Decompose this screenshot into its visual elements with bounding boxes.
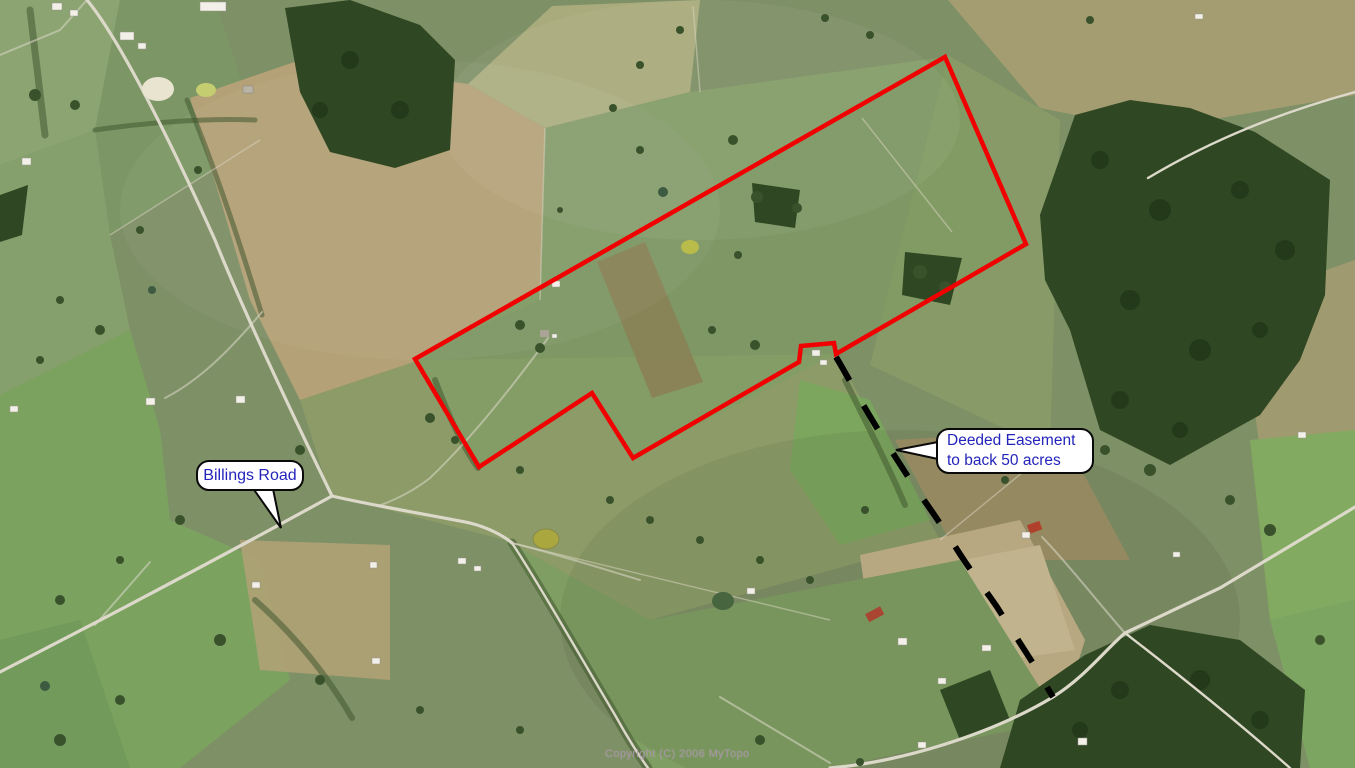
copyright-watermark: Copyright (C) 2006 MyTopo: [605, 748, 765, 760]
easement-label-line2: to back 50 acres: [947, 451, 1092, 471]
easement-label-line1: Deeded Easement: [947, 431, 1092, 451]
easement-callout: Deeded Easement to back 50 acres: [936, 428, 1094, 474]
billings-road-label: Billings Road: [198, 463, 302, 488]
aerial-map: Billings Road Deeded Easement to back 50…: [0, 0, 1355, 768]
billings-road-callout: Billings Road: [196, 460, 304, 491]
aerial-imagery: [0, 0, 1355, 768]
